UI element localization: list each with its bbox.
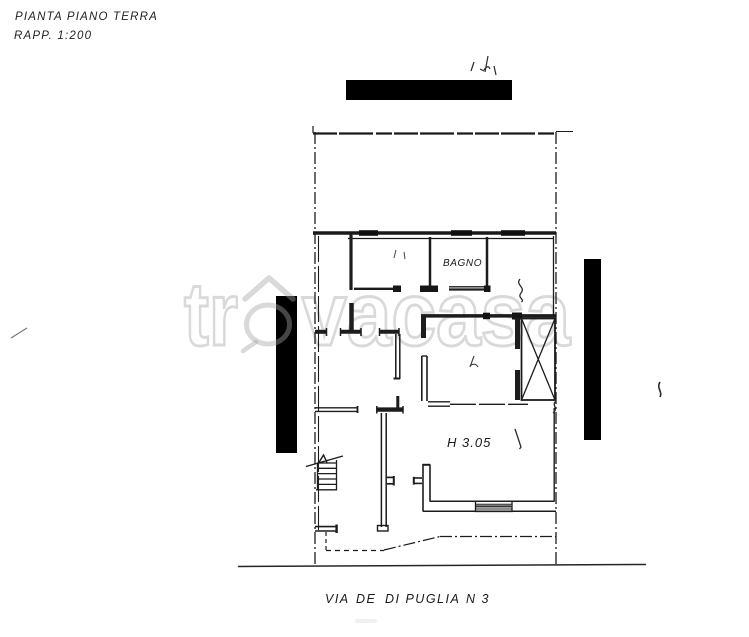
svg-text:tr: tr (184, 265, 238, 365)
svg-text:H 3.05: H 3.05 (447, 435, 491, 450)
svg-text:RAPP. 1:200: RAPP. 1:200 (14, 30, 92, 42)
svg-text:VIA: VIA (325, 592, 350, 606)
svg-text:PIANTA PIANO TERRA: PIANTA PIANO TERRA (15, 11, 158, 23)
svg-text:DI PUGLIA: DI PUGLIA (385, 592, 460, 606)
svg-text:N 3: N 3 (466, 592, 490, 606)
svg-text:BAGNO: BAGNO (443, 258, 482, 269)
svg-text:DE: DE (356, 592, 376, 606)
